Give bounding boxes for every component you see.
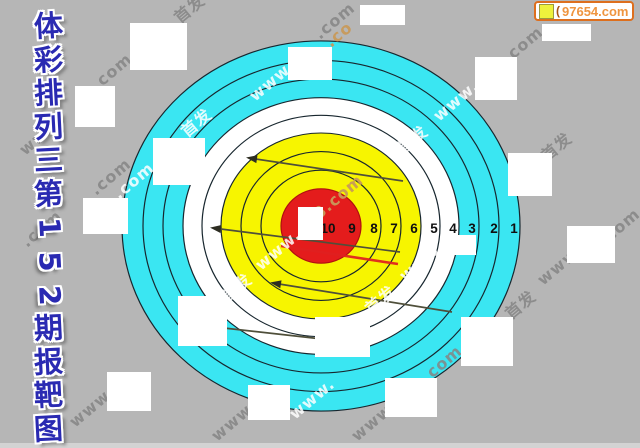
site-watermark-badge[interactable]: ( 97654.com [534, 1, 634, 21]
ring-number: 2 [490, 221, 498, 236]
ring-number: 3 [468, 221, 476, 236]
cover-square [178, 296, 227, 346]
ring-number: 4 [449, 221, 457, 236]
scene-svg: 10987654321首发.com.com首发.comwww.首发.comwww… [0, 0, 640, 448]
ring-number: 7 [390, 221, 398, 236]
ring-number: 1 [510, 221, 518, 236]
ring-number: 5 [430, 221, 438, 236]
cover-square [130, 23, 187, 70]
ring-number: 9 [348, 221, 356, 236]
title-char: 1 [34, 217, 64, 239]
badge-site-text: 97654.com [562, 4, 629, 19]
title-char: 图 [34, 414, 64, 444]
vertical-title: 体彩排列三第152期报靶图 [28, 12, 70, 444]
cover-square [75, 86, 115, 127]
cover-square [461, 317, 513, 366]
cover-square [542, 24, 591, 41]
badge-partial-glyph: ( [556, 5, 560, 17]
title-char: 彩 [34, 45, 64, 75]
ring-number: 6 [410, 221, 418, 236]
title-char: 体 [34, 11, 64, 41]
page-root: 10987654321首发.com.com首发.comwww.首发.comwww… [0, 0, 640, 448]
title-char: 第 [34, 179, 64, 209]
cover-square [153, 138, 205, 185]
badge-logo-square-icon [539, 4, 554, 19]
title-char: 5 [34, 251, 64, 273]
cover-square [475, 57, 517, 100]
title-char: 列 [34, 112, 64, 142]
cover-square [298, 207, 323, 240]
cover-square [360, 5, 405, 25]
title-char: 2 [34, 284, 64, 306]
cover-square [288, 47, 332, 80]
cover-square [315, 317, 370, 357]
title-char: 三 [34, 146, 64, 176]
cover-square [385, 378, 437, 417]
title-char: 报 [34, 347, 64, 377]
cover-square [567, 226, 615, 263]
title-char: 靶 [34, 381, 64, 411]
cover-square [453, 235, 476, 255]
cover-square [83, 198, 128, 234]
cover-square [107, 372, 151, 411]
cover-square [508, 153, 552, 196]
title-char: 期 [34, 313, 64, 343]
cover-square [248, 385, 290, 420]
ring-number: 8 [370, 221, 378, 236]
title-char: 排 [34, 78, 64, 108]
